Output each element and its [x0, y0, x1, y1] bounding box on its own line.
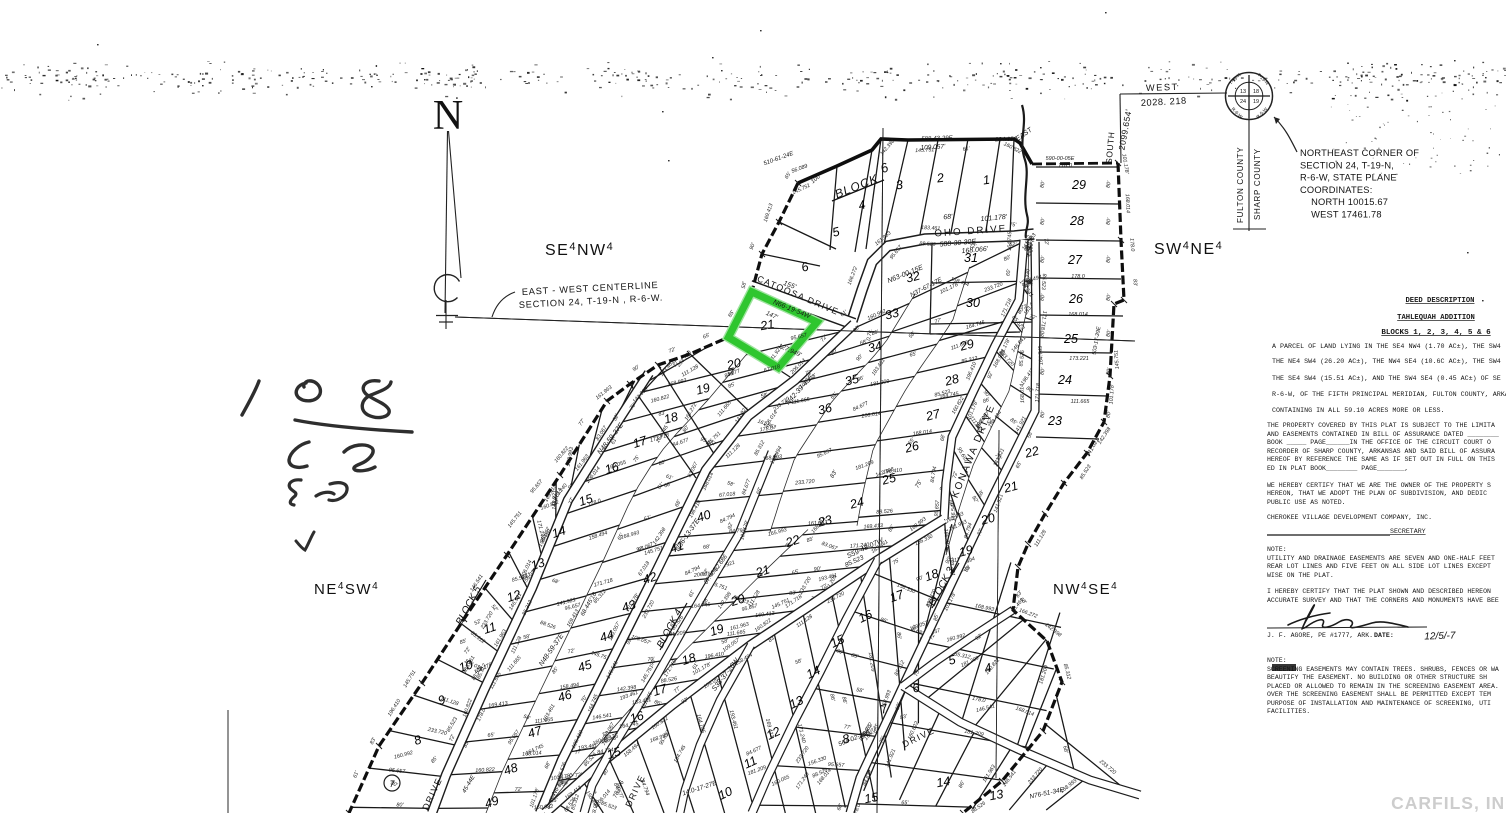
- svg-text:PURPOSE OF INSTALLATION AND: PURPOSE OF INSTALLATION AND MAINTENANCE …: [1267, 700, 1491, 707]
- svg-text:DATE:: DATE:: [1374, 632, 1394, 639]
- svg-text:WEST 17461.78: WEST 17461.78: [1300, 210, 1382, 220]
- svg-text:18: 18: [1253, 89, 1259, 95]
- svg-text:SHARP COUNTY: SHARP COUNTY: [1253, 148, 1262, 220]
- svg-text:NORTHEAST CORNER OF: NORTHEAST CORNER OF: [1300, 148, 1419, 158]
- svg-text:BEAUTIFY THE EASEMENT. NO BU: BEAUTIFY THE EASEMENT. NO BUILDING OR OT…: [1267, 674, 1487, 681]
- svg-text:27: 27: [1067, 253, 1083, 267]
- svg-text:141.921: 141.921: [552, 490, 558, 510]
- svg-text:WE HEREBY CERTIFY THAT WE ARE: WE HEREBY CERTIFY THAT WE ARE THE OWNER …: [1267, 482, 1491, 489]
- svg-text:ACCURATE SURVEY AND THAT THE C: ACCURATE SURVEY AND THAT THE CORNERS AND…: [1267, 597, 1499, 604]
- svg-text:13: 13: [988, 787, 1004, 803]
- svg-text:26: 26: [1068, 292, 1083, 306]
- svg-text:FULTON COUNTY: FULTON COUNTY: [1236, 147, 1245, 223]
- svg-text:HEREOF BY REFERENCE THE SAME A: HEREOF BY REFERENCE THE SAME AS IF SET O…: [1267, 456, 1495, 463]
- svg-text:NORTH 10015.67: NORTH 10015.67: [1300, 197, 1388, 207]
- svg-text:183.461: 183.461: [921, 225, 940, 232]
- svg-text:WEST: WEST: [1146, 82, 1179, 93]
- svg-text:SCREENING EASEMENTS MAY CONTAI: SCREENING EASEMENTS MAY CONTAIN TREES. S…: [1267, 666, 1499, 673]
- svg-text:24: 24: [1057, 373, 1072, 387]
- svg-text:23: 23: [1047, 414, 1062, 428]
- svg-text:68': 68': [943, 214, 953, 222]
- svg-text:BLOCKS 1, 2, 3, 4, 5 & 6: BLOCKS 1, 2, 3, 4, 5 & 6: [1381, 329, 1491, 337]
- svg-text:RECORDER OF SHARP COUNTY, ARKA: RECORDER OF SHARP COUNTY, ARKANSAS AND S…: [1267, 448, 1495, 455]
- svg-text:14: 14: [935, 774, 951, 790]
- svg-text:164.745: 164.745: [1038, 346, 1045, 366]
- svg-text:PLACED OR ALLOWED TO REMAIN IN: PLACED OR ALLOWED TO REMAIN IN THE SCREE…: [1267, 683, 1499, 690]
- svg-text:19: 19: [1253, 99, 1259, 105]
- svg-text:88.526: 88.526: [919, 241, 936, 248]
- svg-text:R-6-W, OF THE FIFTH PRINCIPAL: R-6-W, OF THE FIFTH PRINCIPAL MERIDIAN, …: [1272, 391, 1506, 399]
- svg-text:12/5/-7: 12/5/-7: [1424, 630, 1456, 642]
- svg-text:178.0: 178.0: [1128, 238, 1135, 252]
- svg-text:TAHLEQUAH ADDITION: TAHLEQUAH ADDITION: [1397, 314, 1475, 322]
- svg-text:160.822: 160.822: [475, 767, 495, 774]
- svg-text:NOTE:: NOTE:: [1267, 546, 1287, 553]
- svg-text:NOTE:: NOTE:: [1267, 657, 1287, 664]
- svg-text:178.0: 178.0: [1071, 274, 1085, 280]
- svg-text:CHEROKEE VILLAGE DEVELOPMENT C: CHEROKEE VILLAGE DEVELOPMENT COMPANY, IN…: [1267, 514, 1432, 521]
- svg-text:ED IN PLAT BOOK________ PAGE__: ED IN PLAT BOOK________ PAGE_______,: [1267, 465, 1408, 472]
- svg-text:80': 80': [396, 802, 404, 808]
- svg-text:52': 52': [1009, 242, 1017, 248]
- svg-text:THE SE4 SW4 (15.51 AC±), AND: THE SE4 SW4 (15.51 AC±), AND THE SW4 SE4…: [1272, 375, 1501, 383]
- svg-text:R-6-W, STATE PLANE: R-6-W, STATE PLANE: [1300, 173, 1397, 183]
- svg-text:CONTAINING IN ALL 59.10 ACRES: CONTAINING IN ALL 59.10 ACRES MORE OR LE…: [1272, 407, 1445, 415]
- svg-text:BOOK _____ PAGE______IN THE O: BOOK _____ PAGE______IN THE OFFICE OF TH…: [1267, 439, 1491, 446]
- svg-text:224.051: 224.051: [994, 137, 1017, 144]
- svg-text:J. F. AGORE, PE #1777, ARK.: J. F. AGORE, PE #1777, ARK.: [1267, 632, 1373, 639]
- svg-text:15: 15: [863, 790, 879, 806]
- svg-text:21: 21: [758, 317, 775, 333]
- svg-text:I HEREBY CERTIFY THAT THE PLAT: I HEREBY CERTIFY THAT THE PLAT SHOWN AND…: [1267, 588, 1491, 595]
- svg-text:A PARCEL OF LAND LYING IN THE: A PARCEL OF LAND LYING IN THE SE4 NW4 (1…: [1272, 343, 1501, 351]
- svg-text:UTILITY AND DRAINAGE EASEMENTS: UTILITY AND DRAINAGE EASEMENTS ARE SEVEN…: [1267, 555, 1495, 562]
- svg-text:WISE ON THE PLAT.: WISE ON THE PLAT.: [1267, 572, 1334, 579]
- svg-text:65': 65': [901, 800, 909, 806]
- svg-text:NE4SW4: NE4SW4: [314, 581, 379, 598]
- svg-text:109.057': 109.057': [920, 143, 946, 151]
- svg-text:95.657: 95.657: [828, 762, 846, 769]
- svg-text:173.221: 173.221: [1069, 356, 1089, 362]
- svg-text:CARFILS, INC: CARFILS, INC: [1391, 793, 1506, 813]
- svg-text:THE NE4 SW4 (26.20 AC±), THE N: THE NE4 SW4 (26.20 AC±), THE NW4 SE4 (10…: [1272, 358, 1501, 366]
- svg-text:168.014: 168.014: [1019, 384, 1026, 403]
- svg-text:101.178': 101.178': [1109, 383, 1116, 404]
- svg-text:13: 13: [1240, 89, 1246, 95]
- svg-text:25: 25: [1063, 332, 1078, 346]
- svg-text:160.992: 160.992: [534, 804, 554, 811]
- svg-text:FACILITIES.: FACILITIES.: [1267, 708, 1310, 715]
- svg-text:590-00-05E: 590-00-05E: [1046, 156, 1075, 162]
- svg-text:COORDINATES:: COORDINATES:: [1300, 185, 1372, 195]
- svg-text:24: 24: [1240, 99, 1246, 105]
- svg-text:145.751: 145.751: [1114, 350, 1121, 370]
- svg-text:THE PROPERTY COVERED BY THIS: THE PROPERTY COVERED BY THIS PLAT IS SUB…: [1267, 422, 1495, 429]
- svg-text:PUBLIC USE AS NOTED.: PUBLIC USE AS NOTED.: [1267, 499, 1346, 506]
- svg-text:75': 75': [1009, 222, 1017, 228]
- svg-text:SE4NW4: SE4NW4: [545, 241, 614, 259]
- svg-text:OVER THE SCREENING EASEMENT: OVER THE SCREENING EASEMENT SHALL BE PER…: [1267, 691, 1491, 698]
- svg-text:28: 28: [1069, 214, 1084, 228]
- svg-text:178.0: 178.0: [1058, 163, 1073, 169]
- svg-text:72': 72': [515, 787, 523, 793]
- svg-text:588-43-29E: 588-43-29E: [921, 135, 954, 142]
- svg-text:30: 30: [966, 296, 980, 310]
- svg-text:SECTION 24, T-19-N,: SECTION 24, T-19-N,: [1300, 160, 1394, 170]
- svg-text:SECRETARY: SECRETARY: [1390, 528, 1426, 535]
- svg-text:168.014: 168.014: [1068, 312, 1088, 318]
- svg-text:REAR LOT LINES AND FIVE FEET: REAR LOT LINES AND FIVE FEET ON ALL SIDE…: [1267, 563, 1491, 570]
- svg-text:111.665: 111.665: [1071, 399, 1091, 405]
- svg-text:DEED DESCRIPTION: DEED DESCRIPTION: [1405, 297, 1474, 305]
- svg-text:AND EASEMENTS CONTAINED IN BIL: AND EASEMENTS CONTAINED IN BILL OF ASSUR…: [1267, 431, 1499, 438]
- svg-text:29: 29: [1071, 178, 1086, 192]
- svg-text:84.794: 84.794: [729, 528, 746, 535]
- svg-text:168.014: 168.014: [1124, 194, 1131, 213]
- svg-text:HEREON, THAT WE ADOPT THE P: HEREON, THAT WE ADOPT THE PLAN OF SUBDIV…: [1267, 490, 1487, 497]
